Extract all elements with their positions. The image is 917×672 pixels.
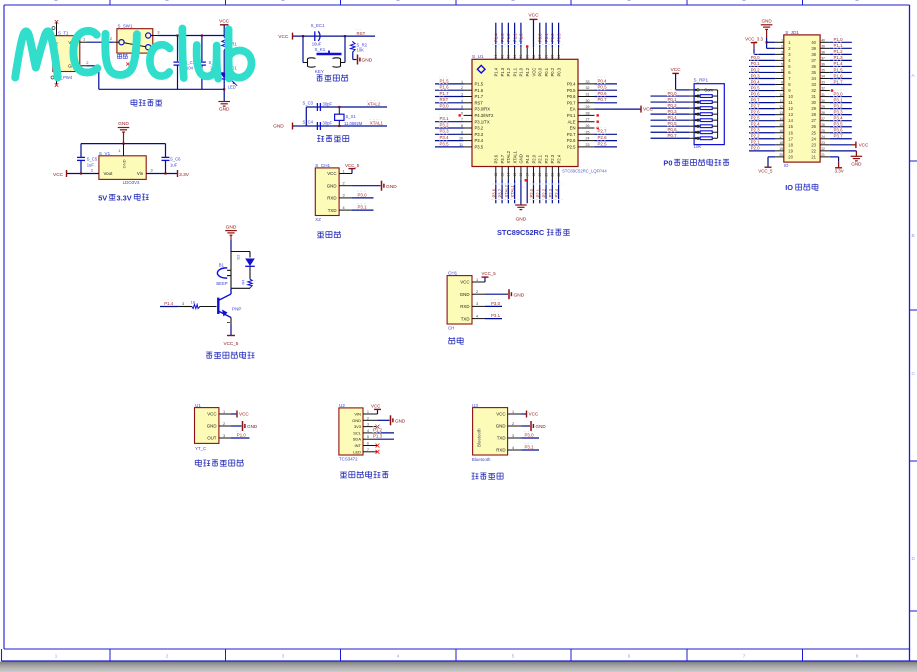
svg-text:11: 11 bbox=[788, 100, 793, 105]
svg-text:INT: INT bbox=[355, 443, 362, 448]
svg-text:SDA: SDA bbox=[353, 437, 362, 442]
svg-text:26: 26 bbox=[586, 124, 590, 128]
svg-text:P1.1: P1.1 bbox=[512, 67, 517, 76]
svg-text:33: 33 bbox=[586, 80, 590, 84]
svg-text:ALE: ALE bbox=[568, 119, 576, 124]
svg-text:21: 21 bbox=[551, 173, 555, 177]
svg-text:P2.1: P2.1 bbox=[751, 140, 761, 145]
svg-text:36: 36 bbox=[811, 64, 816, 69]
svg-text:12: 12 bbox=[494, 173, 498, 177]
svg-text:4: 4 bbox=[342, 206, 344, 210]
svg-text:EA: EA bbox=[570, 107, 576, 112]
svg-text:LED: LED bbox=[353, 449, 361, 454]
svg-text:GND: GND bbox=[386, 184, 397, 190]
svg-text:P2.5: P2.5 bbox=[751, 115, 761, 120]
svg-text:2: 2 bbox=[86, 61, 88, 65]
svg-text:P3.0: P3.0 bbox=[358, 192, 368, 197]
svg-text:1: 1 bbox=[342, 169, 344, 173]
svg-text:P1.2: P1.2 bbox=[506, 67, 511, 76]
svg-text:RXD: RXD bbox=[460, 304, 469, 309]
svg-text:Bluetooth: Bluetooth bbox=[477, 428, 482, 447]
svg-text:3: 3 bbox=[476, 302, 478, 306]
svg-text:VCC_3.3: VCC_3.3 bbox=[745, 37, 763, 42]
svg-text:Vout: Vout bbox=[104, 171, 114, 176]
svg-text:S_V1: S_V1 bbox=[99, 151, 111, 156]
svg-text:VCC: VCC bbox=[529, 412, 539, 417]
svg-text:GND: GND bbox=[273, 123, 284, 129]
svg-text:P0.0: P0.0 bbox=[668, 91, 678, 96]
svg-text:P0.5: P0.5 bbox=[567, 88, 576, 93]
svg-text:P3.0: P3.0 bbox=[440, 104, 450, 109]
svg-text:1: 1 bbox=[55, 654, 58, 659]
svg-text:7: 7 bbox=[367, 448, 369, 452]
svg-text:2: 2 bbox=[223, 422, 225, 426]
svg-text:XTAL2: XTAL2 bbox=[504, 184, 509, 197]
svg-text:4: 4 bbox=[397, 654, 400, 659]
svg-text:P2.4: P2.4 bbox=[554, 188, 559, 197]
svg-text:P0.2: P0.2 bbox=[668, 103, 678, 108]
svg-text:P2.7: P2.7 bbox=[598, 129, 608, 134]
svg-text:23: 23 bbox=[586, 143, 590, 147]
svg-text:VCC: VCC bbox=[460, 280, 469, 285]
svg-text:29: 29 bbox=[586, 105, 590, 109]
svg-text:P1.4: P1.4 bbox=[164, 301, 174, 306]
svg-text:P2.3: P2.3 bbox=[751, 128, 761, 133]
svg-text:P2.1: P2.1 bbox=[535, 188, 540, 197]
svg-text:VCC: VCC bbox=[371, 404, 380, 409]
svg-text:16: 16 bbox=[519, 173, 523, 177]
svg-text:15: 15 bbox=[513, 173, 517, 177]
svg-text:TCS3472: TCS3472 bbox=[339, 457, 358, 462]
svg-text:10: 10 bbox=[788, 94, 793, 99]
svg-text:P3.4: P3.4 bbox=[475, 138, 484, 143]
svg-text:VCC: VCC bbox=[219, 18, 230, 24]
svg-text:38: 38 bbox=[532, 55, 536, 59]
svg-text:P1.4: P1.4 bbox=[494, 67, 499, 76]
svg-text:P1.2: P1.2 bbox=[834, 49, 844, 54]
svg-text:VCC: VCC bbox=[528, 13, 539, 19]
svg-text:IO: IO bbox=[785, 183, 793, 192]
svg-text:VCC: VCC bbox=[327, 171, 336, 176]
svg-text:Vin: Vin bbox=[137, 171, 144, 176]
svg-text:P3.7: P3.7 bbox=[834, 134, 844, 139]
svg-text:CH1: CH1 bbox=[448, 271, 458, 276]
svg-text:14: 14 bbox=[788, 118, 793, 123]
svg-text:P2.2: P2.2 bbox=[751, 134, 761, 139]
svg-text:VCC: VCC bbox=[531, 68, 536, 77]
svg-text:3: 3 bbox=[367, 423, 369, 427]
svg-text:10K: 10K bbox=[694, 144, 702, 149]
svg-text:XTAL1: XTAL1 bbox=[510, 184, 515, 197]
svg-text:3: 3 bbox=[182, 302, 184, 306]
svg-text:GND: GND bbox=[395, 418, 406, 423]
svg-text:35: 35 bbox=[811, 70, 816, 75]
svg-text:STC89C52RC: STC89C52RC bbox=[497, 228, 545, 237]
svg-text:S_K1: S_K1 bbox=[315, 47, 326, 52]
svg-text:P1.7: P1.7 bbox=[440, 91, 450, 96]
svg-text:P0.7: P0.7 bbox=[751, 97, 761, 102]
svg-text:P0.6: P0.6 bbox=[567, 94, 576, 99]
svg-text:S_JD1: S_JD1 bbox=[785, 30, 799, 35]
svg-text:P0.0: P0.0 bbox=[751, 55, 761, 60]
svg-text:2: 2 bbox=[367, 416, 369, 420]
svg-text:P0.3: P0.3 bbox=[668, 109, 678, 114]
svg-text:P1.3: P1.3 bbox=[500, 33, 505, 42]
svg-text:21: 21 bbox=[811, 154, 816, 159]
svg-text:14: 14 bbox=[507, 173, 511, 177]
svg-text:Bluetooth: Bluetooth bbox=[472, 457, 491, 462]
svg-text:P0.2: P0.2 bbox=[550, 33, 555, 42]
svg-text:P1.6: P1.6 bbox=[475, 88, 484, 93]
svg-text:GND: GND bbox=[207, 424, 217, 429]
svg-text:5: 5 bbox=[367, 435, 369, 439]
svg-text:RST: RST bbox=[440, 97, 449, 102]
svg-text:34: 34 bbox=[811, 76, 816, 81]
svg-text:GND: GND bbox=[121, 159, 126, 168]
svg-text:P3.6: P3.6 bbox=[494, 154, 499, 163]
svg-text:GND: GND bbox=[536, 424, 547, 429]
svg-text:41: 41 bbox=[513, 55, 517, 59]
svg-text:P1.3: P1.3 bbox=[500, 67, 505, 76]
svg-text:P1.4: P1.4 bbox=[834, 61, 844, 66]
svg-text:39: 39 bbox=[811, 46, 816, 51]
svg-text:GND: GND bbox=[761, 19, 772, 24]
svg-text:LED: LED bbox=[228, 85, 236, 90]
svg-text:P0.6: P0.6 bbox=[598, 91, 608, 96]
svg-text:GND: GND bbox=[519, 154, 524, 163]
svg-text:VCC_5: VCC_5 bbox=[758, 168, 773, 173]
svg-text:P4.3/INT2: P4.3/INT2 bbox=[475, 113, 495, 118]
svg-text:YT_C: YT_C bbox=[195, 446, 206, 451]
svg-text:P2.4: P2.4 bbox=[556, 154, 561, 163]
svg-text:4: 4 bbox=[512, 446, 514, 450]
svg-text:19: 19 bbox=[538, 173, 542, 177]
svg-text:P0.3: P0.3 bbox=[556, 33, 561, 42]
svg-text:P0.5: P0.5 bbox=[598, 85, 608, 90]
svg-text:RST: RST bbox=[357, 31, 366, 36]
svg-text:13: 13 bbox=[788, 112, 793, 117]
svg-text:37: 37 bbox=[811, 58, 816, 63]
svg-text:P3.1: P3.1 bbox=[440, 116, 450, 121]
svg-text:P0.6: P0.6 bbox=[751, 91, 761, 96]
svg-text:1uF: 1uF bbox=[87, 163, 95, 168]
svg-text:43: 43 bbox=[500, 55, 504, 59]
svg-text:TXD: TXD bbox=[497, 436, 506, 441]
svg-text:GND: GND bbox=[327, 183, 337, 188]
svg-text:P2.4: P2.4 bbox=[751, 122, 761, 127]
svg-text:KEY: KEY bbox=[315, 69, 324, 74]
svg-text:P0.1: P0.1 bbox=[544, 67, 549, 76]
svg-text:P2.2: P2.2 bbox=[542, 188, 547, 197]
svg-text:P0.4: P0.4 bbox=[668, 115, 678, 120]
svg-text:4: 4 bbox=[367, 429, 369, 433]
svg-text:P0.4: P0.4 bbox=[567, 82, 576, 87]
svg-text:P0.0: P0.0 bbox=[538, 33, 543, 42]
svg-text:GND: GND bbox=[352, 418, 361, 423]
svg-text:C: C bbox=[912, 371, 916, 377]
svg-text:5V: 5V bbox=[98, 193, 107, 202]
svg-text:P0.3: P0.3 bbox=[556, 67, 561, 76]
svg-text:XTAL2: XTAL2 bbox=[367, 102, 381, 107]
svg-text:P0.3: P0.3 bbox=[751, 73, 761, 78]
svg-text:P3.7: P3.7 bbox=[500, 154, 505, 163]
svg-text:S_X1: S_X1 bbox=[346, 114, 357, 119]
svg-text:P2.5: P2.5 bbox=[567, 145, 576, 150]
svg-text:6: 6 bbox=[461, 111, 463, 115]
svg-text:S_T1: S_T1 bbox=[58, 31, 69, 36]
svg-text:P1.5: P1.5 bbox=[475, 82, 484, 87]
svg-text:P3.3: P3.3 bbox=[834, 109, 844, 114]
svg-text:3.3V: 3.3V bbox=[117, 193, 132, 202]
svg-text:S_C5: S_C5 bbox=[87, 157, 98, 162]
svg-text:P3.0/RX: P3.0/RX bbox=[475, 107, 491, 112]
svg-text:P3.6: P3.6 bbox=[834, 128, 844, 133]
svg-text:2: 2 bbox=[476, 290, 478, 294]
svg-text:P3.3: P3.3 bbox=[475, 132, 484, 137]
svg-text:VCC_5: VCC_5 bbox=[482, 271, 497, 276]
svg-text:P1.2: P1.2 bbox=[506, 33, 511, 42]
svg-text:P2.1: P2.1 bbox=[538, 154, 543, 163]
svg-text:27: 27 bbox=[586, 118, 590, 122]
svg-text:SCL: SCL bbox=[353, 430, 362, 435]
svg-text:1: 1 bbox=[223, 410, 225, 414]
svg-text:VCC_5: VCC_5 bbox=[224, 341, 239, 346]
svg-text:VCC: VCC bbox=[496, 412, 505, 417]
svg-text:18: 18 bbox=[788, 142, 793, 147]
svg-text:GND: GND bbox=[362, 58, 373, 64]
svg-text:1: 1 bbox=[367, 410, 369, 414]
svg-text:GND: GND bbox=[516, 217, 527, 223]
svg-text:VCC: VCC bbox=[859, 143, 869, 148]
svg-text:XZ: XZ bbox=[315, 217, 321, 222]
svg-text:P2.6: P2.6 bbox=[567, 138, 576, 143]
svg-text:GND: GND bbox=[247, 424, 258, 429]
svg-text:U1: U1 bbox=[195, 403, 201, 408]
svg-text:30pF: 30pF bbox=[323, 101, 333, 106]
svg-text:P0.6: P0.6 bbox=[668, 127, 678, 132]
svg-text:4: 4 bbox=[476, 314, 478, 318]
svg-text:P0.7: P0.7 bbox=[598, 97, 608, 102]
svg-text:6: 6 bbox=[628, 654, 631, 659]
svg-text:3.3V: 3.3V bbox=[179, 172, 190, 178]
svg-text:19: 19 bbox=[788, 148, 793, 153]
svg-text:EN: EN bbox=[570, 126, 576, 131]
svg-text:S_C6: S_C6 bbox=[170, 157, 181, 162]
svg-text:R4: R4 bbox=[242, 280, 246, 285]
svg-text:P3.1: P3.1 bbox=[525, 445, 535, 450]
svg-text:RST: RST bbox=[475, 100, 484, 105]
svg-text:1: 1 bbox=[476, 278, 478, 282]
svg-text:24: 24 bbox=[811, 136, 816, 141]
svg-text:17: 17 bbox=[788, 136, 793, 141]
svg-text:7: 7 bbox=[743, 654, 746, 659]
svg-text:XTAL1: XTAL1 bbox=[512, 150, 517, 163]
svg-text:2: 2 bbox=[110, 37, 112, 41]
svg-text:P1.6: P1.6 bbox=[440, 85, 450, 90]
svg-text:31: 31 bbox=[811, 94, 816, 99]
svg-text:P0: P0 bbox=[663, 158, 672, 167]
svg-text:P3.0: P3.0 bbox=[491, 301, 501, 306]
svg-text:P0.7: P0.7 bbox=[668, 133, 678, 138]
svg-text:2: 2 bbox=[342, 182, 344, 186]
svg-text:P2.3: P2.3 bbox=[550, 154, 555, 163]
svg-text:P3.4: P3.4 bbox=[834, 115, 844, 120]
svg-text:P1.1: P1.1 bbox=[512, 33, 517, 42]
svg-text:TXD: TXD bbox=[328, 208, 337, 213]
svg-text:30: 30 bbox=[586, 99, 590, 103]
svg-text:P1.0: P1.0 bbox=[237, 433, 247, 438]
svg-text:15: 15 bbox=[788, 124, 793, 129]
svg-text:VCC_5: VCC_5 bbox=[345, 163, 360, 168]
svg-text:22: 22 bbox=[811, 148, 816, 153]
svg-text:3: 3 bbox=[150, 168, 152, 172]
svg-text:20: 20 bbox=[788, 154, 793, 159]
svg-text:TXD: TXD bbox=[461, 316, 470, 321]
svg-text:P0.5: P0.5 bbox=[751, 85, 761, 90]
svg-text:P0.0: P0.0 bbox=[538, 67, 543, 76]
svg-text:39: 39 bbox=[526, 55, 530, 59]
svg-text:16: 16 bbox=[788, 130, 793, 135]
svg-text:P3.2: P3.2 bbox=[475, 126, 484, 131]
svg-text:8: 8 bbox=[856, 654, 859, 659]
svg-text:35: 35 bbox=[551, 55, 555, 59]
svg-text:29: 29 bbox=[811, 106, 816, 111]
svg-text:3V3: 3V3 bbox=[354, 424, 362, 429]
svg-text:3: 3 bbox=[157, 30, 159, 34]
svg-text:VCC: VCC bbox=[207, 412, 216, 417]
svg-text:P0.4: P0.4 bbox=[751, 79, 761, 84]
svg-text:OUT: OUT bbox=[207, 436, 217, 441]
svg-text:P0.5: P0.5 bbox=[668, 121, 678, 126]
svg-text:P1.0: P1.0 bbox=[519, 33, 524, 42]
svg-text:U3: U3 bbox=[472, 403, 478, 408]
svg-text:B: B bbox=[912, 233, 915, 239]
svg-text:P0.1: P0.1 bbox=[751, 61, 761, 66]
svg-text:P2.3: P2.3 bbox=[548, 188, 553, 197]
svg-text:17: 17 bbox=[526, 173, 530, 177]
svg-text:28: 28 bbox=[586, 111, 590, 115]
svg-text:25: 25 bbox=[586, 130, 590, 134]
svg-text:3: 3 bbox=[282, 654, 285, 659]
svg-text:34: 34 bbox=[557, 55, 561, 59]
svg-text:GND: GND bbox=[514, 292, 525, 298]
svg-text:P1.5: P1.5 bbox=[834, 67, 844, 72]
svg-text:P3.3: P3.3 bbox=[440, 129, 450, 134]
svg-text:P2.5: P2.5 bbox=[598, 141, 608, 146]
svg-text:25: 25 bbox=[811, 130, 816, 135]
svg-text:27: 27 bbox=[811, 118, 816, 123]
svg-text:6: 6 bbox=[367, 442, 369, 446]
svg-text:26: 26 bbox=[811, 124, 816, 129]
svg-text:D2: D2 bbox=[237, 255, 241, 260]
svg-text:18: 18 bbox=[532, 173, 536, 177]
svg-text:P3.4: P3.4 bbox=[440, 135, 450, 140]
svg-text:13: 13 bbox=[500, 173, 504, 177]
svg-text:3: 3 bbox=[223, 434, 225, 438]
svg-text:32: 32 bbox=[811, 88, 816, 93]
svg-text:5: 5 bbox=[512, 654, 515, 659]
svg-text:P2.0: P2.0 bbox=[531, 154, 536, 163]
svg-text:P0.7: P0.7 bbox=[567, 100, 576, 105]
svg-text:IO: IO bbox=[784, 163, 789, 168]
svg-text:S_EC1: S_EC1 bbox=[311, 23, 325, 28]
svg-text:3.3V: 3.3V bbox=[835, 168, 844, 173]
svg-text:1K: 1K bbox=[191, 299, 196, 304]
svg-text:P3.1: P3.1 bbox=[491, 313, 501, 318]
svg-text:LDO3V3: LDO3V3 bbox=[123, 180, 140, 185]
svg-text:P0.1: P0.1 bbox=[544, 33, 549, 42]
svg-text:B1: B1 bbox=[219, 262, 225, 267]
svg-text:P0.1: P0.1 bbox=[668, 97, 678, 102]
svg-text:P3.0: P3.0 bbox=[834, 91, 844, 96]
svg-text:1uF: 1uF bbox=[170, 163, 178, 168]
svg-text:P0.4: P0.4 bbox=[598, 78, 608, 83]
svg-text:XTAL2: XTAL2 bbox=[506, 150, 511, 163]
svg-text:GND: GND bbox=[496, 424, 506, 429]
svg-text:RXD: RXD bbox=[496, 448, 505, 453]
svg-text:23: 23 bbox=[811, 142, 816, 147]
svg-text:P1.6: P1.6 bbox=[834, 73, 844, 78]
svg-text:S_SW1: S_SW1 bbox=[118, 23, 133, 28]
svg-text:20: 20 bbox=[544, 173, 548, 177]
svg-text:D: D bbox=[912, 556, 916, 562]
svg-text:37: 37 bbox=[538, 55, 542, 59]
svg-text:GND: GND bbox=[226, 224, 237, 230]
svg-text:12: 12 bbox=[788, 106, 793, 111]
svg-text:VIN: VIN bbox=[354, 412, 361, 417]
svg-text:P3.2: P3.2 bbox=[440, 122, 450, 127]
svg-text:40: 40 bbox=[811, 40, 816, 45]
svg-text:S_C4: S_C4 bbox=[303, 120, 314, 125]
svg-text:S_RP1: S_RP1 bbox=[694, 77, 709, 82]
svg-text:22: 22 bbox=[557, 173, 561, 177]
svg-text:P1.3: P1.3 bbox=[373, 434, 383, 439]
svg-text:P1.7: P1.7 bbox=[475, 94, 484, 99]
svg-text:33: 33 bbox=[811, 82, 816, 87]
svg-text:2: 2 bbox=[166, 654, 169, 659]
svg-text:3: 3 bbox=[512, 434, 514, 438]
svg-text:XTAL1: XTAL1 bbox=[370, 121, 384, 126]
svg-text:P4.1: P4.1 bbox=[567, 113, 576, 118]
svg-text:GND: GND bbox=[219, 107, 230, 113]
svg-text:P4.0: P4.0 bbox=[525, 154, 530, 163]
svg-text:P2.0: P2.0 bbox=[751, 146, 761, 151]
svg-text:1: 1 bbox=[512, 410, 514, 414]
svg-text:P3.1: P3.1 bbox=[358, 205, 368, 210]
svg-text:28: 28 bbox=[811, 112, 816, 117]
svg-text:P1.2: P1.2 bbox=[373, 427, 383, 432]
svg-text:P2.2: P2.2 bbox=[544, 154, 549, 163]
svg-text:38: 38 bbox=[811, 52, 816, 57]
svg-text:P3.0: P3.0 bbox=[525, 433, 535, 438]
svg-text:VCC: VCC bbox=[53, 172, 64, 178]
svg-text:PNP: PNP bbox=[232, 307, 241, 312]
svg-text:1: 1 bbox=[118, 149, 120, 153]
svg-text:P4.2: P4.2 bbox=[525, 67, 530, 76]
svg-text:P2.7: P2.7 bbox=[567, 132, 576, 137]
svg-text:S_C3: S_C3 bbox=[303, 101, 314, 106]
svg-text:30pF: 30pF bbox=[323, 120, 333, 125]
svg-text:P1.4: P1.4 bbox=[494, 33, 499, 42]
svg-text:10K: 10K bbox=[357, 47, 365, 52]
svg-text:P1.5: P1.5 bbox=[440, 78, 450, 83]
svg-text:24: 24 bbox=[586, 137, 590, 141]
svg-text:P3.1: P3.1 bbox=[834, 97, 844, 102]
svg-text:P1.3: P1.3 bbox=[834, 55, 844, 60]
svg-text:3: 3 bbox=[342, 194, 344, 198]
svg-text:42: 42 bbox=[507, 55, 511, 59]
svg-text:10uF: 10uF bbox=[312, 42, 322, 47]
